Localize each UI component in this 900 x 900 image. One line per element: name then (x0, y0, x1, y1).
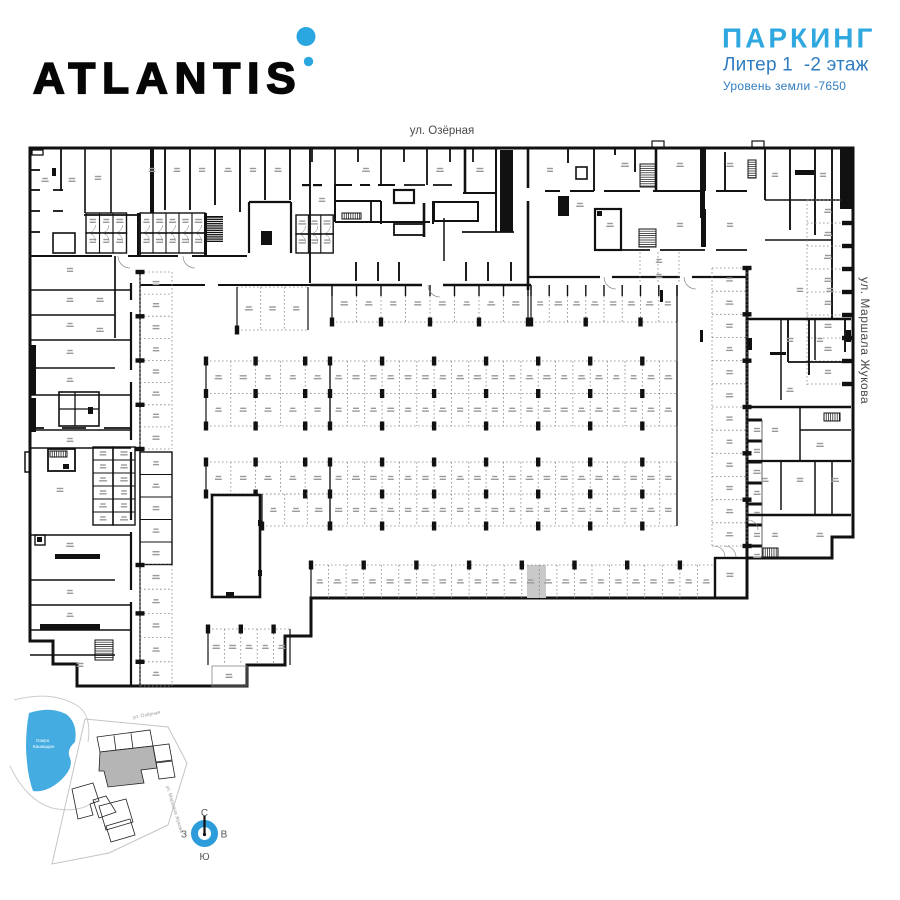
svg-text:Литер 1 -2 этаж: Литер 1 -2 этаж (723, 55, 869, 76)
svg-text:З: З (181, 830, 187, 841)
svg-text:Кашкадан: Кашкадан (33, 744, 55, 749)
svg-text:Уровень земли -7650: Уровень земли -7650 (723, 79, 846, 93)
svg-text:ATLANTIS: ATLANTIS (33, 54, 302, 103)
svg-text:ул. Маршала Жукова: ул. Маршала Жукова (858, 277, 872, 404)
svg-text:С: С (201, 808, 208, 819)
svg-text:Ю: Ю (199, 852, 209, 863)
svg-text:В: В (221, 830, 228, 841)
svg-text:ПАРКИНГ: ПАРКИНГ (722, 23, 875, 54)
svg-text:ул. Озёрная: ул. Озёрная (410, 125, 475, 137)
svg-text:Озеро: Озеро (36, 738, 50, 743)
